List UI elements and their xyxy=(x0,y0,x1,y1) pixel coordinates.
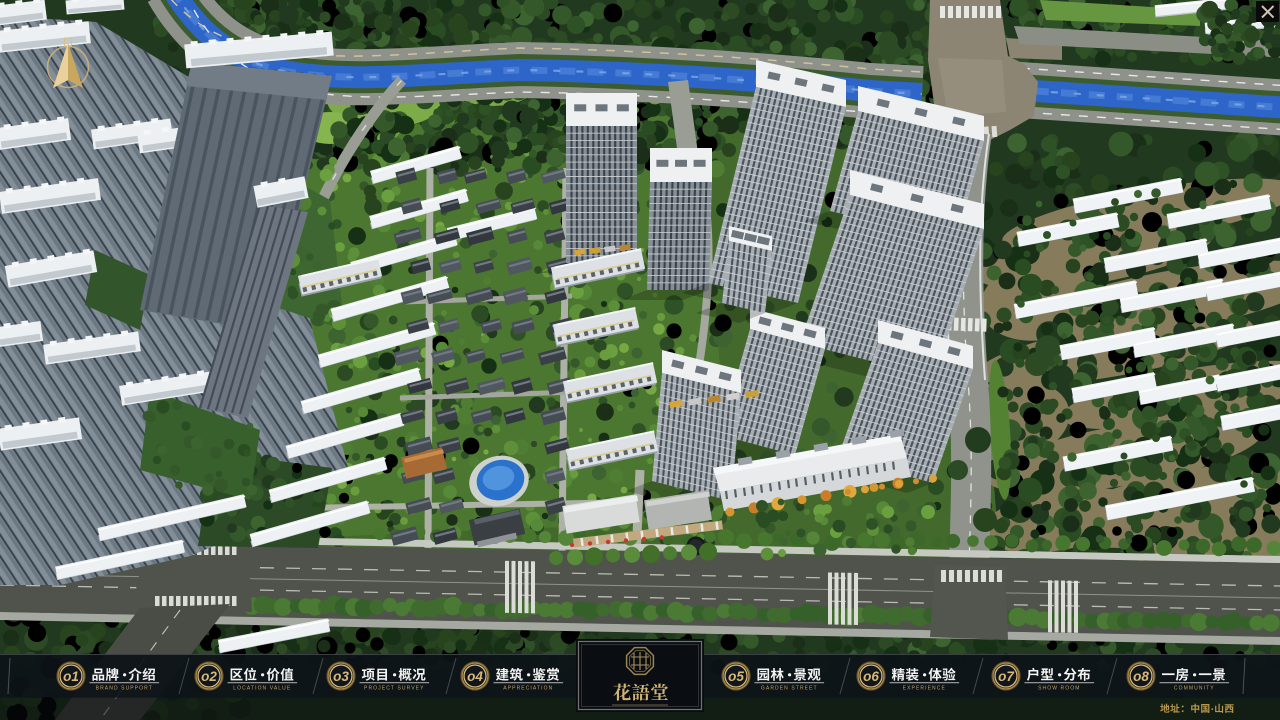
svg-text:o1: o1 xyxy=(63,669,79,684)
svg-text:BRAND SUPPORT: BRAND SUPPORT xyxy=(96,686,153,692)
svg-text:PROJECT SURVEY: PROJECT SURVEY xyxy=(364,686,425,692)
svg-text:o3: o3 xyxy=(333,669,349,684)
svg-text:SHOW ROOM: SHOW ROOM xyxy=(1038,686,1080,692)
svg-text:EXPERIENCE: EXPERIENCE xyxy=(903,686,946,692)
svg-text:o8: o8 xyxy=(1133,669,1149,684)
svg-text:APPRECIATION: APPRECIATION xyxy=(503,686,553,692)
svg-text:o7: o7 xyxy=(998,669,1015,684)
svg-text:COMMUNITY: COMMUNITY xyxy=(1174,686,1215,692)
svg-text:o6: o6 xyxy=(863,669,879,684)
svg-text:LOCATION VALUE: LOCATION VALUE xyxy=(233,686,291,692)
svg-text:o5: o5 xyxy=(728,669,744,684)
svg-text:o4: o4 xyxy=(467,669,483,684)
svg-text:o2: o2 xyxy=(201,669,217,684)
svg-text:GARDEN STREET: GARDEN STREET xyxy=(761,686,818,692)
